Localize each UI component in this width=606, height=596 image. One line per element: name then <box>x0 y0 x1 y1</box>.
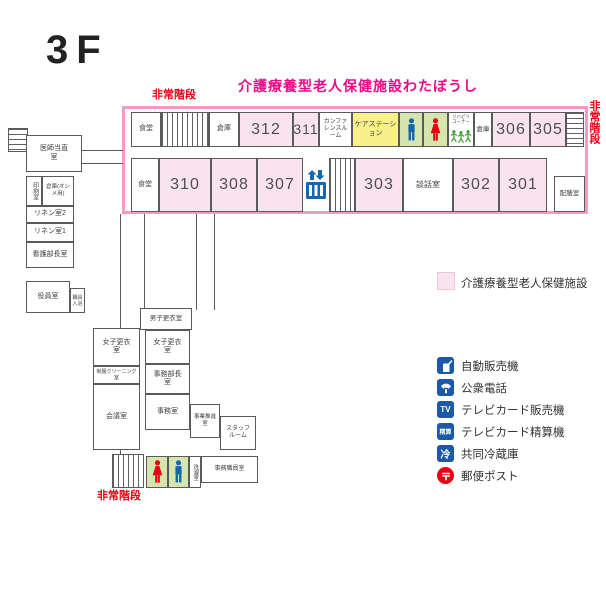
stairs-top-left <box>161 112 209 147</box>
legend-item-tv-card-vending: TV テレビカード販売機 <box>437 401 565 418</box>
legend-item-mail-post: 郵便ポスト <box>437 467 519 484</box>
room-storage-top-right: 倉庫 <box>474 112 492 147</box>
room-office: 事務室 <box>145 394 190 430</box>
room-307: 307 <box>257 158 303 212</box>
shared-refrigerator-icon: 冷 <box>437 445 454 462</box>
room-womens-locker: 女子更衣室 <box>145 330 190 364</box>
room-303: 303 <box>355 158 403 212</box>
legend-item-tv-card-adjuster: 精算 テレビカード精算機 <box>437 423 565 440</box>
room-306: 306 <box>492 112 530 147</box>
room-linen-2: リネン室2 <box>26 206 74 223</box>
room-302: 302 <box>453 158 499 212</box>
corridor-wall <box>144 214 145 310</box>
stairs-top-right <box>566 112 584 147</box>
mail-post-icon <box>437 467 454 484</box>
facility-banner: 介護療養型老人保健施設わたぼうし <box>238 76 478 96</box>
legend-item-refrigerator: 冷 共同冷蔵庫 <box>437 445 519 462</box>
man-icon <box>406 118 417 142</box>
toilet-men-top <box>399 112 423 147</box>
tv-card-adjuster-icon: 精算 <box>437 423 454 440</box>
room-storage-diapers: 倉庫(オシメ用) <box>42 176 74 206</box>
woman-icon <box>151 460 164 484</box>
elevator-icon <box>305 170 327 202</box>
exercising-people-icon <box>449 129 473 145</box>
corridor-wall <box>82 163 123 164</box>
room-308: 308 <box>211 158 257 212</box>
room-care-station: ケアステーション <box>352 112 399 147</box>
public-phone-icon <box>437 379 454 396</box>
emergency-stairs-label-top: 非常階段 <box>152 86 196 102</box>
room-admin-director: 事務部長室 <box>145 364 190 394</box>
legend-item-phone: 公衆電話 <box>437 379 507 396</box>
room-305: 305 <box>530 112 566 147</box>
toilet-men-south <box>168 456 189 488</box>
rehab-corner: リハビリコーナー <box>448 112 474 147</box>
room-mens-locker: 男子更衣室 <box>140 308 192 330</box>
room-conference: カンファレンスルーム <box>319 112 352 147</box>
room-311: 311 <box>293 112 319 147</box>
room-meeting: 会議室 <box>93 384 140 450</box>
room-301: 301 <box>499 158 547 212</box>
room-doctor-duty: 医師当直室 <box>26 135 82 172</box>
woman-icon <box>429 118 442 142</box>
room-uniform-cleaning: 制服クリーニング室 <box>93 366 140 384</box>
room-312: 312 <box>239 112 293 147</box>
legend-item-vending: 自動販売機 <box>437 357 519 374</box>
room-dining-top: 食堂 <box>131 112 161 147</box>
corridor-wall <box>214 214 215 310</box>
toilet-women-south <box>146 456 168 488</box>
toilet-women-top <box>423 112 448 147</box>
room-dining-bottom: 食堂 <box>131 158 159 212</box>
room-lounge: 談話室 <box>403 158 453 212</box>
stairs-bottom-middle <box>329 158 355 212</box>
room-staff-bath: 職員入浴 <box>70 288 85 313</box>
room-nursing-director: 看護部長室 <box>26 242 74 268</box>
room-office-staff: 事務職員室 <box>201 456 258 483</box>
room-staff-room: スタッフルーム <box>220 416 256 450</box>
room-womens-locker-west: 女子更衣室 <box>93 328 140 366</box>
stairs-south <box>112 454 144 488</box>
vending-machine-icon <box>437 357 454 374</box>
room-laundry: 洗濯室 <box>189 456 201 488</box>
tv-card-vending-icon: TV <box>437 401 454 418</box>
room-business-promotion: 事業推進室 <box>190 404 220 438</box>
man-icon <box>173 460 184 484</box>
emergency-stairs-label-bottom: 非常階段 <box>97 487 141 503</box>
room-printing: 印刷室 <box>26 176 42 206</box>
room-310: 310 <box>159 158 211 212</box>
floor-plan-3f: 3F 介護療養型老人保健施設わたぼうし 非常階段 非常階段 非常階段 食堂 倉庫… <box>0 0 606 596</box>
legend-pink-label: 介護療養型老人保健施設 <box>461 275 588 291</box>
room-linen-1: リネン室1 <box>26 223 74 242</box>
legend-pink-swatch <box>437 272 455 290</box>
corridor-wall <box>196 214 197 310</box>
room-storage-top-left: 倉庫 <box>209 112 239 147</box>
corridor-wall <box>82 150 123 151</box>
stairs-west <box>8 128 28 152</box>
room-executive: 役員室 <box>26 281 70 313</box>
emergency-stairs-label-right: 非常階段 <box>586 100 602 144</box>
room-serving: 配膳室 <box>554 176 585 212</box>
floor-title: 3F <box>46 28 109 73</box>
